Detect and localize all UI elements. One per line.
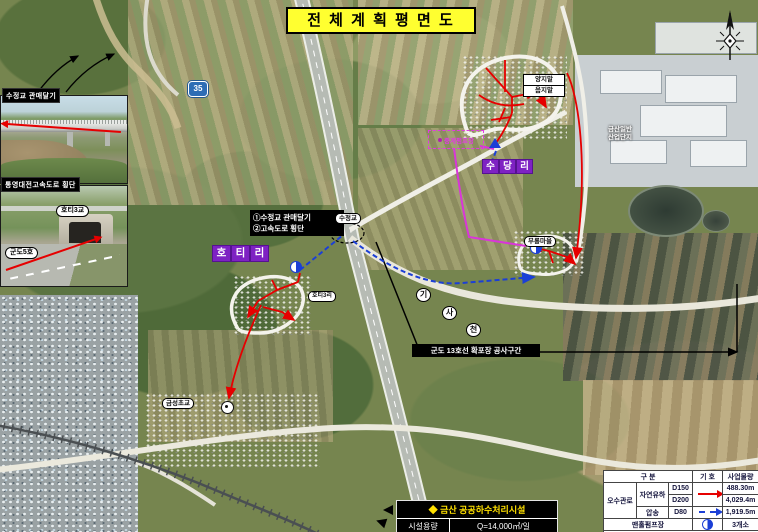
legend-header-category: 구 분	[604, 471, 693, 483]
outfall-marker	[221, 401, 234, 414]
railway-line	[0, 425, 320, 532]
plan-drawing-canvas: 수정교 관매달기 통영대전고속도로 횡단 호티3교 군도5호 ①수정교 관매달기…	[0, 0, 758, 532]
road-south	[0, 427, 758, 470]
label-yangjimal: 양지말	[524, 75, 564, 85]
village-label-sudang-char: 당	[499, 159, 516, 174]
construction-section-label: 군도 13호선 확포장 공사구간	[412, 344, 540, 357]
facility-title: ◆ 금산 공공하수처리시설	[397, 501, 557, 518]
label-sujeonggyo: 수정교	[335, 213, 361, 224]
legend-table: 구 분 기 호 사업물량 오수관로 자연유하 D150 488.30m D200…	[603, 470, 758, 532]
legend-pump-label: 맨홀펌프장	[604, 519, 693, 531]
legend-dia-d150: D150	[669, 483, 693, 495]
legend-header-row: 구 분 기 호 사업물량	[604, 471, 758, 483]
industrial-complex-label: 금산일반 산업단지	[608, 126, 632, 142]
legend-symbol-pump	[693, 519, 723, 531]
facility-capacity-label: 시설용량	[397, 519, 450, 532]
label-yangji-eumji: 양지말 음지말	[523, 74, 565, 97]
page-title: 전 체 계 획 평 면 도	[286, 7, 476, 34]
north-compass-icon	[706, 8, 754, 64]
note-line-2: ②고속도로 횡단	[253, 223, 341, 234]
legend-row-pump: 맨홀펌프장 3개소	[604, 519, 758, 531]
industrial-label-line1: 금산일반	[608, 126, 632, 134]
legend-group-sewer: 오수관로	[604, 483, 637, 519]
facility-capacity-row: 시설용량 Q=14,000㎥/일	[397, 518, 557, 532]
inset-photo-underpass	[0, 185, 128, 287]
outfall-dot	[225, 405, 228, 408]
village-label-sudang-char: 수	[482, 159, 499, 174]
road-north-right	[562, 6, 587, 262]
village-label-hoti-char: 호	[212, 245, 231, 262]
stream-name-char: 천	[466, 323, 481, 337]
stream-name-char: 사	[442, 306, 457, 320]
village-loop-road-hoti	[232, 277, 304, 333]
inset-photo-bridge	[0, 95, 128, 184]
inset2-bridge-tag: 호티3교	[56, 205, 89, 217]
industrial-label-line2: 산업단지	[608, 134, 632, 142]
legend-type-gravity: 자연유하	[637, 483, 669, 507]
legend-symbol-pressure	[693, 507, 723, 519]
legend-header-quantity: 사업물량	[723, 471, 758, 483]
expressway-35	[300, 0, 428, 532]
legend-row-d150: 오수관로 자연유하 D150 488.30m	[604, 483, 758, 495]
inset2-road-tag: 군도5호	[5, 247, 38, 259]
pointer-triangle-icon	[383, 505, 393, 515]
legend-qty-d200: 4,029.4m	[723, 495, 758, 507]
legend-type-pressure: 압송	[637, 507, 669, 519]
photo-leader-arrow	[66, 54, 114, 92]
legend-pump-qty: 3개소	[723, 519, 758, 531]
label-murong: 무롱마을	[524, 236, 556, 247]
relay-pump-label: 중계펌프장	[428, 130, 484, 149]
stream-name-char: 기	[416, 288, 431, 302]
red-arrow-icon	[698, 493, 718, 495]
facility-capacity-value: Q=14,000㎥/일	[450, 519, 557, 532]
blue-dashed-arrow-icon	[699, 511, 716, 513]
label-geumseong: 금성초교	[162, 398, 194, 409]
legend-qty-d150: 488.30m	[723, 483, 758, 495]
pump-dot-icon	[438, 138, 442, 142]
railway-ties	[0, 425, 320, 532]
bridge-pier	[105, 132, 110, 146]
label-hoti3ri: 호티3리	[308, 291, 336, 302]
photo-leader-arrow	[38, 56, 78, 92]
legend-qty-d80: 1,919.5m	[723, 507, 758, 519]
construction-note-box: ①수정교 관매달기 ②고속도로 횡단	[250, 210, 344, 236]
legend-header-symbol: 기 호	[693, 471, 723, 483]
treatment-facility-box: ◆ 금산 공공하수처리시설 시설용량 Q=14,000㎥/일	[396, 500, 558, 532]
legend-dia-d200: D200	[669, 495, 693, 507]
village-label-sudang-char: 리	[516, 159, 533, 174]
label-eumjimal: 음지말	[524, 85, 564, 96]
manhole-pump-marker	[290, 261, 302, 273]
village-label-hoti-char: 리	[250, 245, 269, 262]
manhole-pump-triangle-marker	[489, 138, 501, 148]
inset2-caption: 통영대전고속도로 횡단	[1, 177, 80, 192]
inset1-caption: 수정교 관매달기	[2, 88, 60, 103]
legend-symbol-gravity	[693, 483, 723, 507]
note-line-1: ①수정교 관매달기	[253, 212, 341, 223]
expressway-route-shield: 35	[188, 81, 208, 97]
legend-dia-d80: D80	[669, 507, 693, 519]
road-urban-link	[135, 462, 215, 505]
relay-pump-text: 중계펌프장	[444, 135, 474, 145]
village-label-hoti-char: 티	[231, 245, 250, 262]
pump-symbol-icon	[702, 519, 713, 530]
